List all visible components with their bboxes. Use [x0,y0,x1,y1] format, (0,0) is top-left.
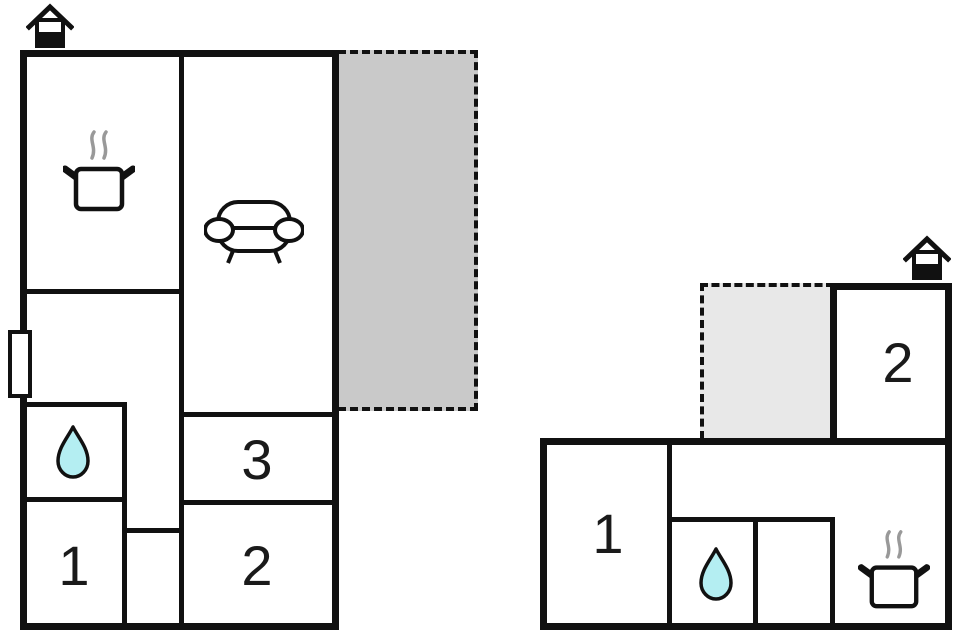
interior-wall [25,497,126,502]
interior-wall [182,412,334,417]
room-label-left-bedroom-2: 2 [227,537,287,595]
interior-wall [122,528,183,533]
house-chimney-icon [26,3,74,50]
window-marker [8,330,32,398]
water-drop-icon [697,546,735,602]
terrace-right [700,283,834,439]
room-label-left-bedroom-1: 1 [44,537,104,595]
interior-wall [25,289,183,294]
interior-wall [753,517,758,625]
terrace-left [338,50,478,411]
interior-wall [830,517,835,625]
interior-wall [182,500,334,505]
interior-wall [25,402,126,407]
interior-wall [179,55,184,625]
cooking-pot-icon [63,127,135,215]
room-label-right-bedroom-2: 2 [868,334,928,392]
room-label-left-bedroom-3: 3 [227,431,287,489]
house-chimney-icon [903,235,951,282]
interior-wall [122,402,127,625]
sofa-icon [204,194,304,266]
interior-wall [667,443,672,625]
water-drop-icon [54,424,92,480]
floor-plan-canvas: 1 3 2 1 2 [0,0,960,632]
room-label-right-bedroom-1: 1 [578,505,638,563]
cooking-pot-icon [858,527,930,612]
interior-wall [667,517,835,522]
